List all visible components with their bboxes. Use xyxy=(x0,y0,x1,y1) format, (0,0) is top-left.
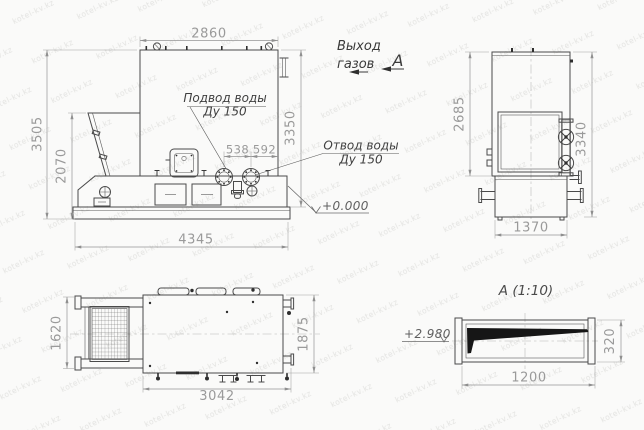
dim-side-upper-height: 2685 xyxy=(453,96,468,131)
detail-title: А (1:10) xyxy=(498,283,553,299)
dim-base-length: 4345 xyxy=(178,233,213,248)
grate-grid xyxy=(92,309,127,360)
dim-plan-length: 3042 xyxy=(199,389,234,404)
dim-front-body-height: 3350 xyxy=(284,110,299,145)
label-gas-outlet-line1: Выход xyxy=(337,39,381,54)
watermark-layer xyxy=(0,0,644,430)
dim-side-total-height: 3340 xyxy=(575,121,590,156)
view-direction-letter: А xyxy=(392,51,404,70)
technical-drawing-boiler: kotel-kv.kz kotel-kv.kz xyxy=(0,0,644,430)
dim-detail-width: 1200 xyxy=(511,371,546,386)
drawing-sheet: kotel-kv.kz kotel-kv.kz xyxy=(0,0,644,430)
label-water-outlet-line2: Ду 150 xyxy=(338,153,383,167)
dim-plan-grate-width: 1620 xyxy=(50,315,65,350)
label-water-inlet-line1: Подвод воды xyxy=(183,91,266,105)
dim-plan-body-width: 1875 xyxy=(297,316,312,351)
label-gas-outlet-line2: газов xyxy=(337,57,374,72)
dim-front-hopper-height: 2070 xyxy=(55,148,70,183)
dim-detail-height: 320 xyxy=(603,328,618,355)
level-mark-base-value: +0.000 xyxy=(322,199,369,213)
level-mark-duct: +2.980 xyxy=(402,327,451,342)
dim-side-base-width: 1370 xyxy=(513,221,548,236)
dim-flange-span-2: 592 xyxy=(253,143,276,157)
dim-front-width: 2860 xyxy=(191,27,226,42)
dim-flange-span-1: 538 xyxy=(226,143,249,157)
label-water-outlet-line1: Отвод воды xyxy=(323,139,398,153)
dim-front-height-total: 3505 xyxy=(31,116,46,151)
level-mark-duct-value: +2.980 xyxy=(404,327,451,341)
